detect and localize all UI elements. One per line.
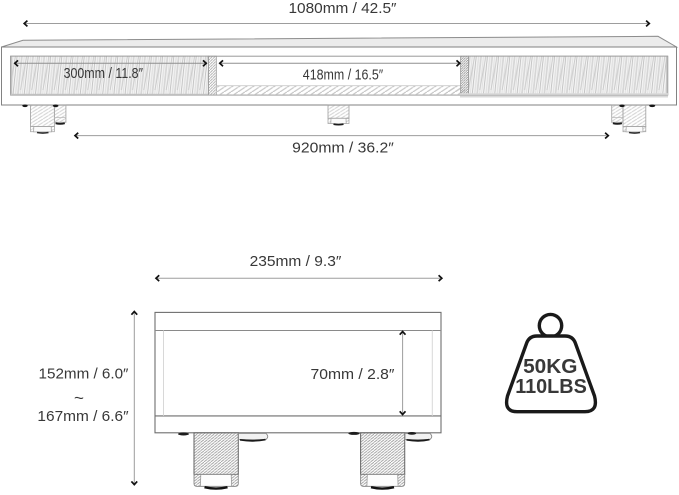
svg-text:167mm / 6.6″: 167mm / 6.6″: [37, 408, 129, 425]
svg-text:920mm / 36.2″: 920mm / 36.2″: [292, 139, 394, 156]
svg-text:152mm / 6.0″: 152mm / 6.0″: [39, 365, 130, 382]
svg-text:1080mm / 42.5″: 1080mm / 42.5″: [289, 0, 398, 17]
svg-text:110LBS: 110LBS: [515, 376, 587, 398]
svg-text:50KG: 50KG: [523, 356, 577, 378]
svg-text:~: ~: [74, 389, 84, 408]
svg-text:300mm / 11.8″: 300mm / 11.8″: [64, 65, 144, 82]
svg-text:70mm / 2.8″: 70mm / 2.8″: [311, 366, 396, 383]
svg-text:418mm / 16.5″: 418mm / 16.5″: [303, 67, 384, 84]
svg-text:235mm / 9.3″: 235mm / 9.3″: [250, 253, 342, 270]
